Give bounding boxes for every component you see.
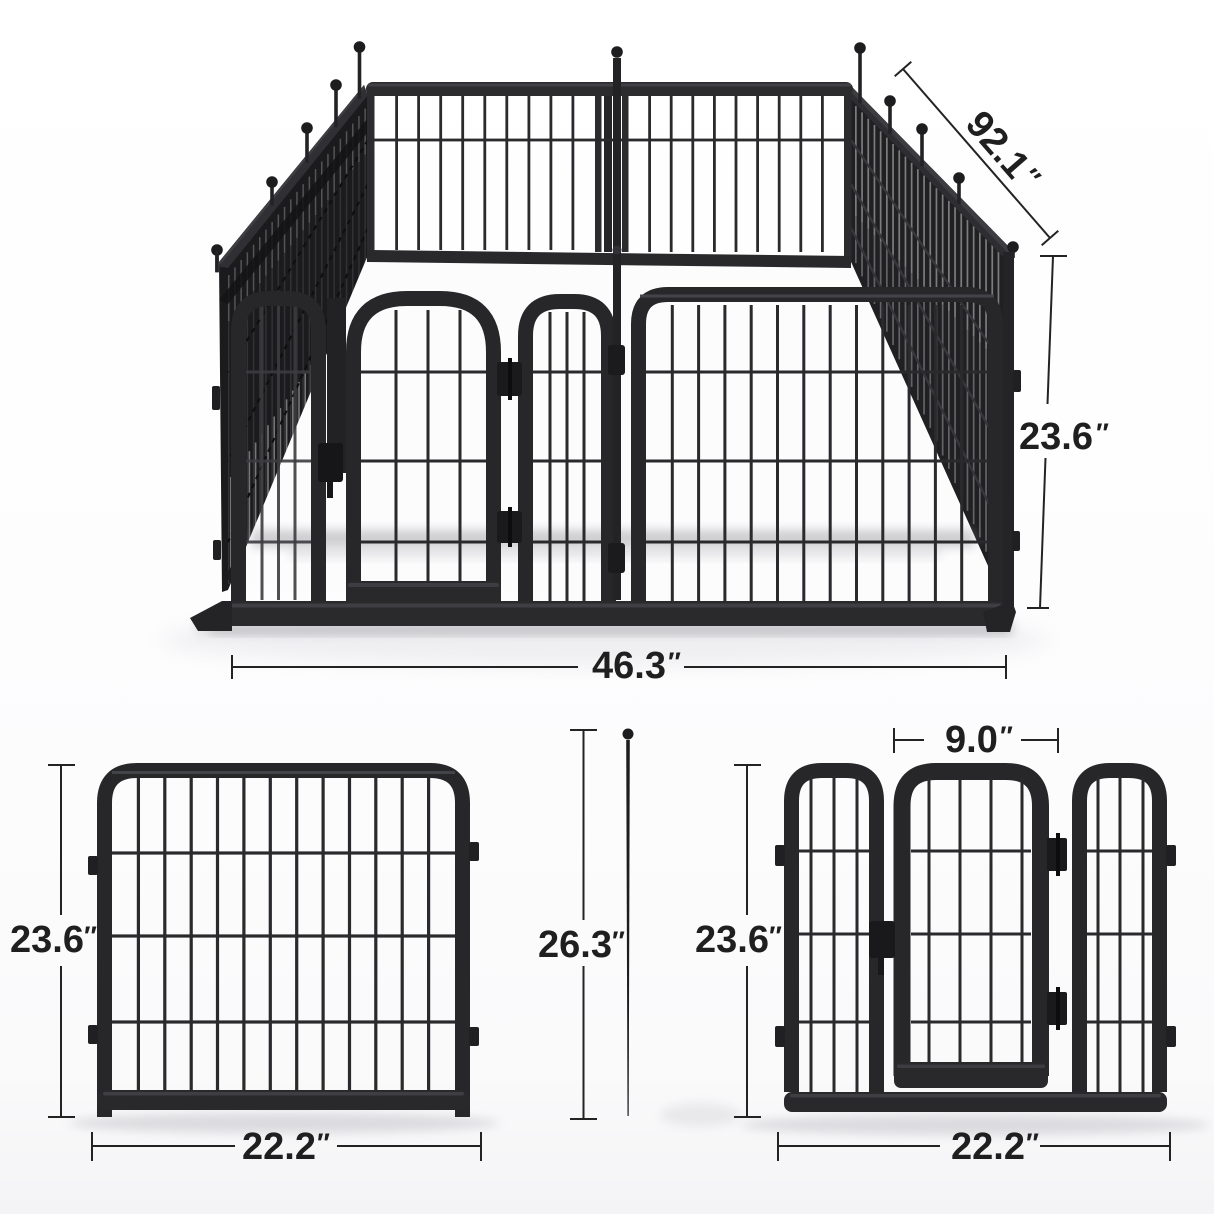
svg-text:″: ″ [1000, 721, 1013, 751]
svg-text:26.3: 26.3 [538, 924, 612, 966]
svg-text:″: ″ [612, 926, 625, 956]
svg-text:23.6: 23.6 [10, 919, 84, 961]
svg-text:23.6: 23.6 [1019, 416, 1093, 458]
svg-text:″: ″ [84, 921, 97, 951]
svg-text:″: ″ [1096, 418, 1109, 448]
svg-text:22.2: 22.2 [242, 1126, 316, 1168]
svg-text:″: ″ [668, 647, 681, 677]
svg-text:″: ″ [769, 921, 782, 951]
svg-text:″: ″ [317, 1128, 330, 1158]
svg-text:″: ″ [1026, 1128, 1039, 1158]
svg-text:46.3: 46.3 [592, 645, 666, 687]
svg-text:9.0: 9.0 [945, 719, 998, 761]
svg-text:23.6: 23.6 [695, 919, 769, 961]
svg-text:22.2: 22.2 [951, 1126, 1025, 1168]
